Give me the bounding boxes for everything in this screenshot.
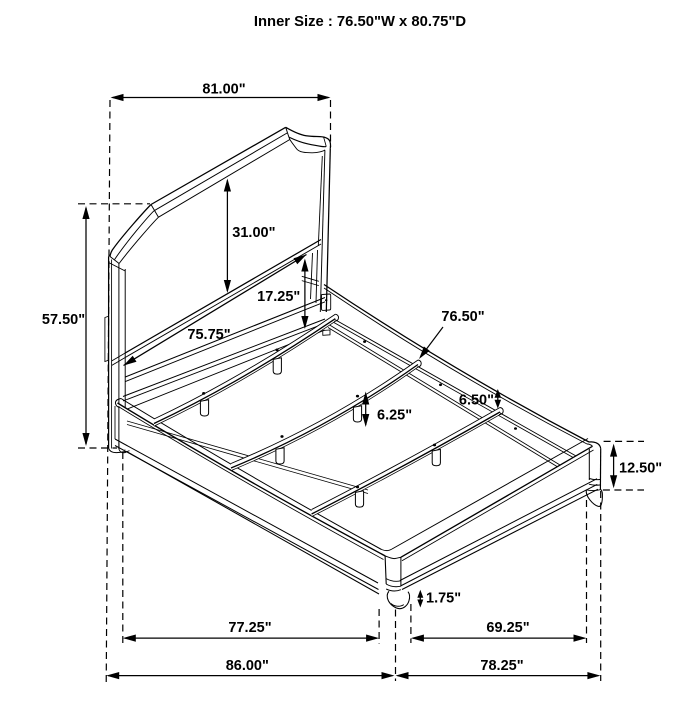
svg-text:78.25": 78.25" (480, 658, 523, 674)
svg-text:6.50": 6.50" (459, 393, 494, 409)
svg-text:69.25": 69.25" (486, 620, 529, 636)
svg-text:75.75": 75.75" (187, 327, 230, 343)
svg-text:77.25": 77.25" (228, 620, 271, 636)
svg-text:31.00": 31.00" (232, 225, 275, 241)
svg-text:Inner Size : 76.50"W x 80.75"D: Inner Size : 76.50"W x 80.75"D (254, 14, 467, 30)
svg-text:76.50": 76.50" (441, 309, 484, 325)
svg-text:6.25": 6.25" (377, 408, 412, 424)
svg-text:81.00": 81.00" (202, 82, 245, 98)
svg-text:1.75": 1.75" (426, 591, 461, 607)
svg-text:86.00": 86.00" (226, 658, 269, 674)
svg-text:57.50": 57.50" (42, 312, 85, 328)
svg-text:17.25": 17.25" (257, 289, 300, 305)
svg-text:12.50": 12.50" (619, 461, 662, 477)
